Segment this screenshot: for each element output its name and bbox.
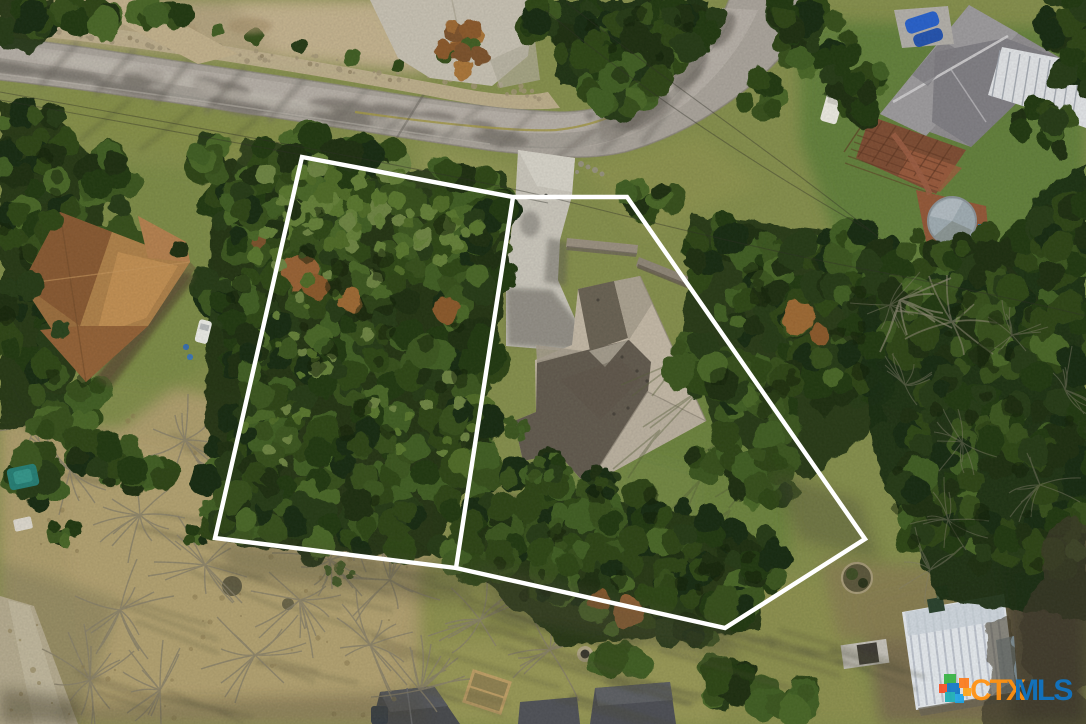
svg-text:MLS: MLS [1014, 674, 1072, 707]
